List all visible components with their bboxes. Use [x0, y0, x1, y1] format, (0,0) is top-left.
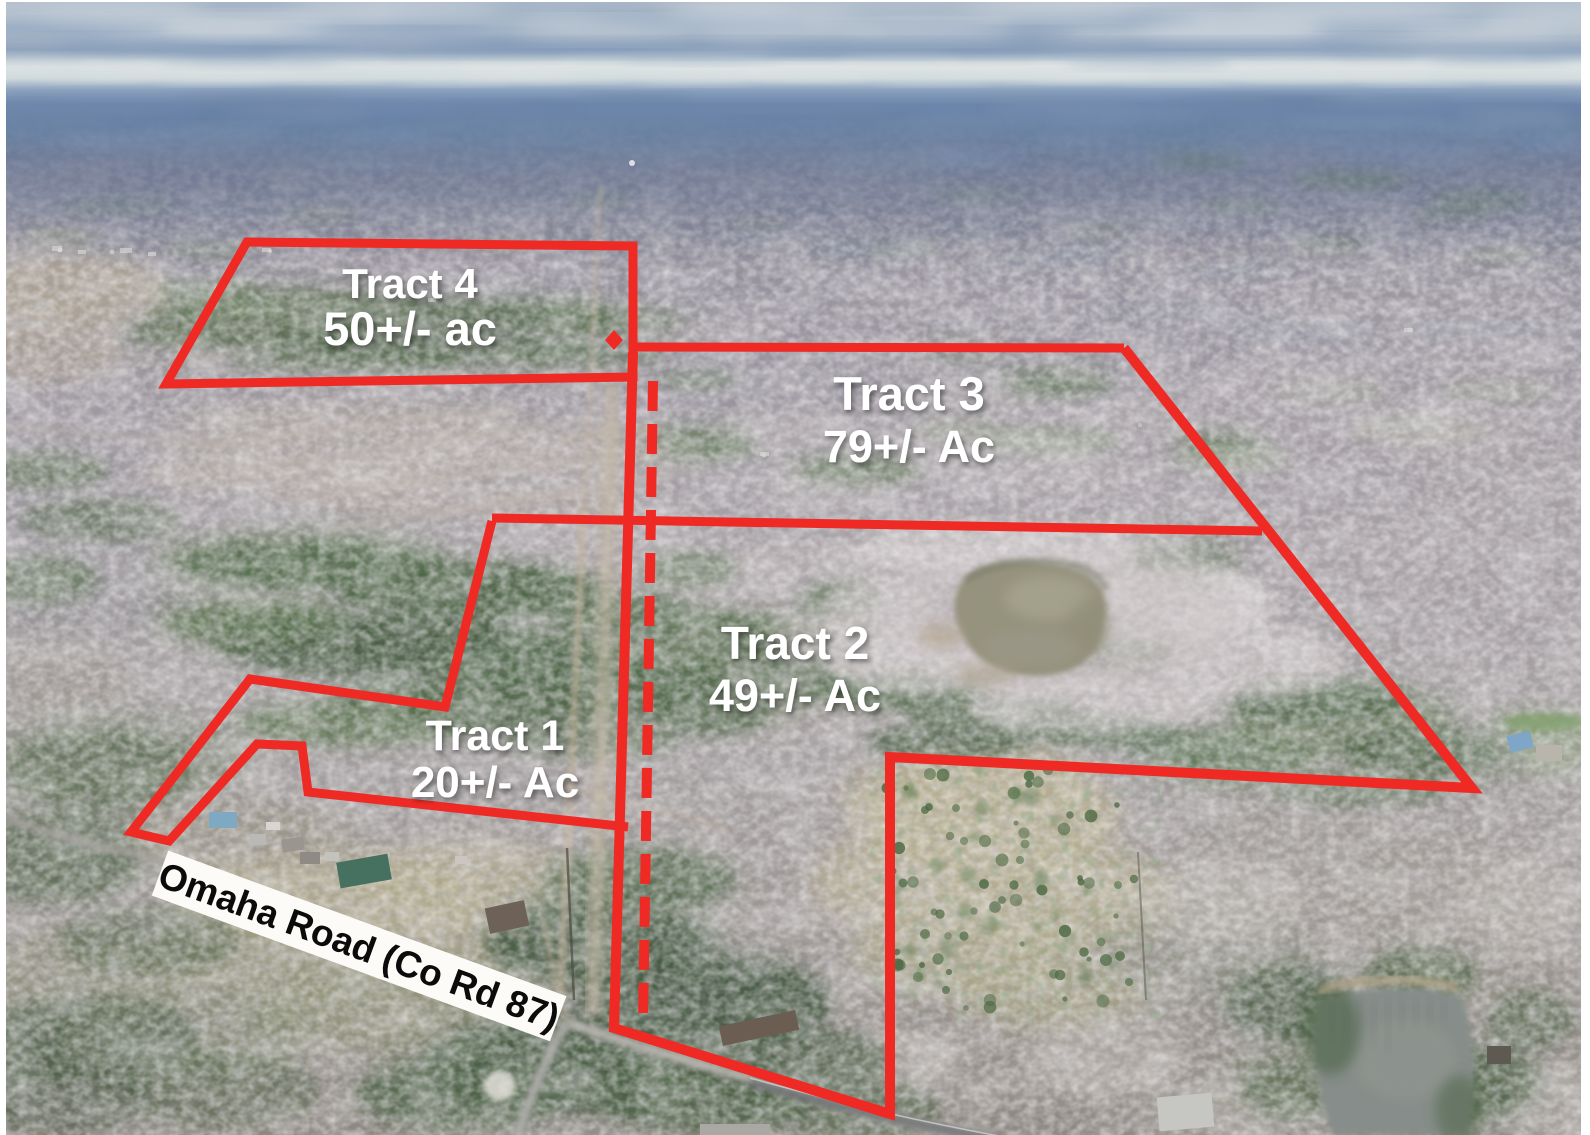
- svg-text:Tract 1: Tract 1: [426, 712, 565, 760]
- svg-text:Tract 4: Tract 4: [342, 260, 478, 307]
- svg-text:50+/- ac: 50+/- ac: [323, 302, 497, 355]
- svg-text:49+/- Ac: 49+/- Ac: [709, 670, 881, 721]
- svg-text:Tract 3: Tract 3: [833, 367, 985, 420]
- svg-text:Tract 2: Tract 2: [721, 617, 869, 669]
- svg-text:20+/- Ac: 20+/- Ac: [411, 758, 579, 807]
- svg-text:79+/- Ac: 79+/- Ac: [823, 421, 995, 472]
